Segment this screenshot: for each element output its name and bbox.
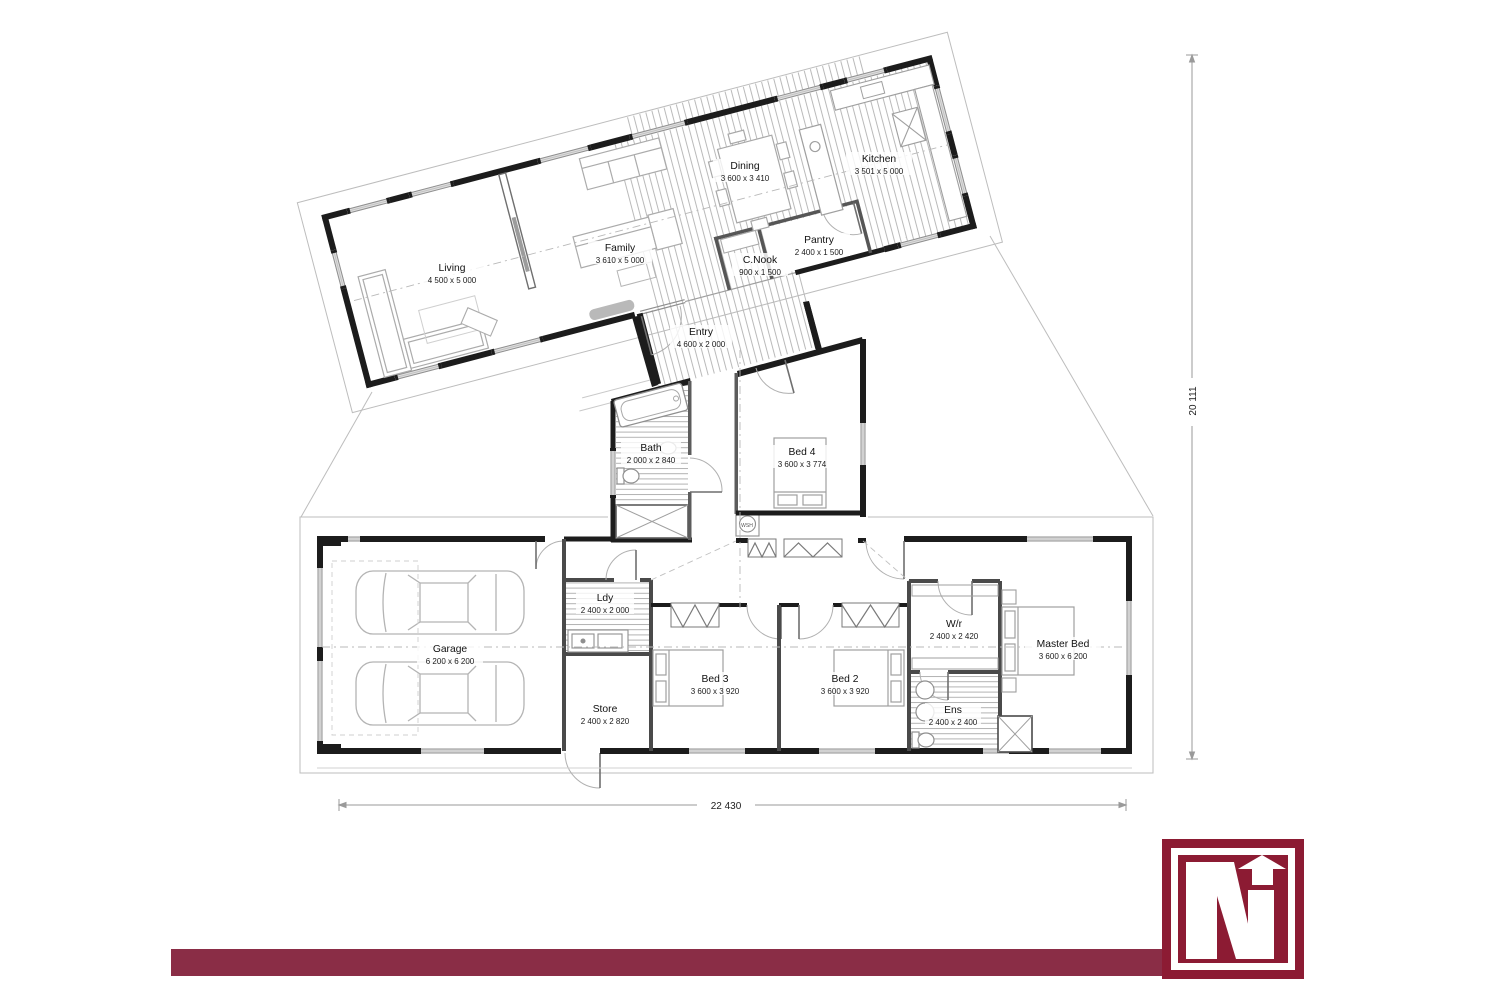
svg-text:Bed 3: Bed 3: [702, 674, 729, 685]
svg-text:3 600 x 3 920: 3 600 x 3 920: [821, 687, 870, 696]
svg-text:2 400 x 2 400: 2 400 x 2 400: [929, 718, 978, 727]
svg-text:900 x 1 500: 900 x 1 500: [739, 268, 781, 277]
svg-text:2 400 x 2 820: 2 400 x 2 820: [581, 717, 630, 726]
svg-text:Bed 4: Bed 4: [789, 447, 816, 458]
svg-text:Store: Store: [593, 704, 618, 715]
svg-text:2 000 x 2 840: 2 000 x 2 840: [627, 456, 676, 465]
svg-text:3 600 x 3 920: 3 600 x 3 920: [691, 687, 740, 696]
svg-text:Kitchen: Kitchen: [862, 154, 897, 165]
svg-text:20 111: 20 111: [1188, 386, 1199, 416]
svg-text:C.Nook: C.Nook: [743, 255, 778, 266]
svg-text:Entry: Entry: [689, 327, 714, 338]
svg-text:Ens: Ens: [944, 705, 962, 716]
svg-text:3 501 x 5 000: 3 501 x 5 000: [855, 167, 904, 176]
svg-text:3 600 x 3 774: 3 600 x 3 774: [778, 460, 827, 469]
svg-text:Dining: Dining: [730, 161, 759, 172]
svg-text:Bath: Bath: [640, 443, 661, 454]
svg-text:Living: Living: [439, 263, 466, 274]
svg-text:6 200 x 6 200: 6 200 x 6 200: [426, 657, 475, 666]
svg-text:Pantry: Pantry: [804, 235, 835, 246]
svg-text:WSH: WSH: [741, 523, 753, 529]
svg-text:Family: Family: [605, 243, 636, 254]
svg-text:Garage: Garage: [433, 644, 468, 655]
svg-text:2 400 x 2 420: 2 400 x 2 420: [930, 632, 979, 641]
svg-text:3 600 x 3 410: 3 600 x 3 410: [721, 174, 770, 183]
svg-text:3 610 x 5 000: 3 610 x 5 000: [596, 256, 645, 265]
svg-text:2 400 x 2 000: 2 400 x 2 000: [581, 606, 630, 615]
svg-text:2 400 x 1 500: 2 400 x 1 500: [795, 248, 844, 257]
svg-text:4 600 x 2 000: 4 600 x 2 000: [677, 340, 726, 349]
svg-text:22 430: 22 430: [711, 801, 742, 812]
svg-text:Ldy: Ldy: [597, 593, 614, 604]
svg-text:3 600 x 6 200: 3 600 x 6 200: [1039, 652, 1088, 661]
svg-text:4 500 x 5 000: 4 500 x 5 000: [428, 276, 477, 285]
svg-text:Master Bed: Master Bed: [1037, 639, 1090, 650]
svg-text:W/r: W/r: [946, 619, 963, 630]
svg-text:Bed 2: Bed 2: [832, 674, 859, 685]
